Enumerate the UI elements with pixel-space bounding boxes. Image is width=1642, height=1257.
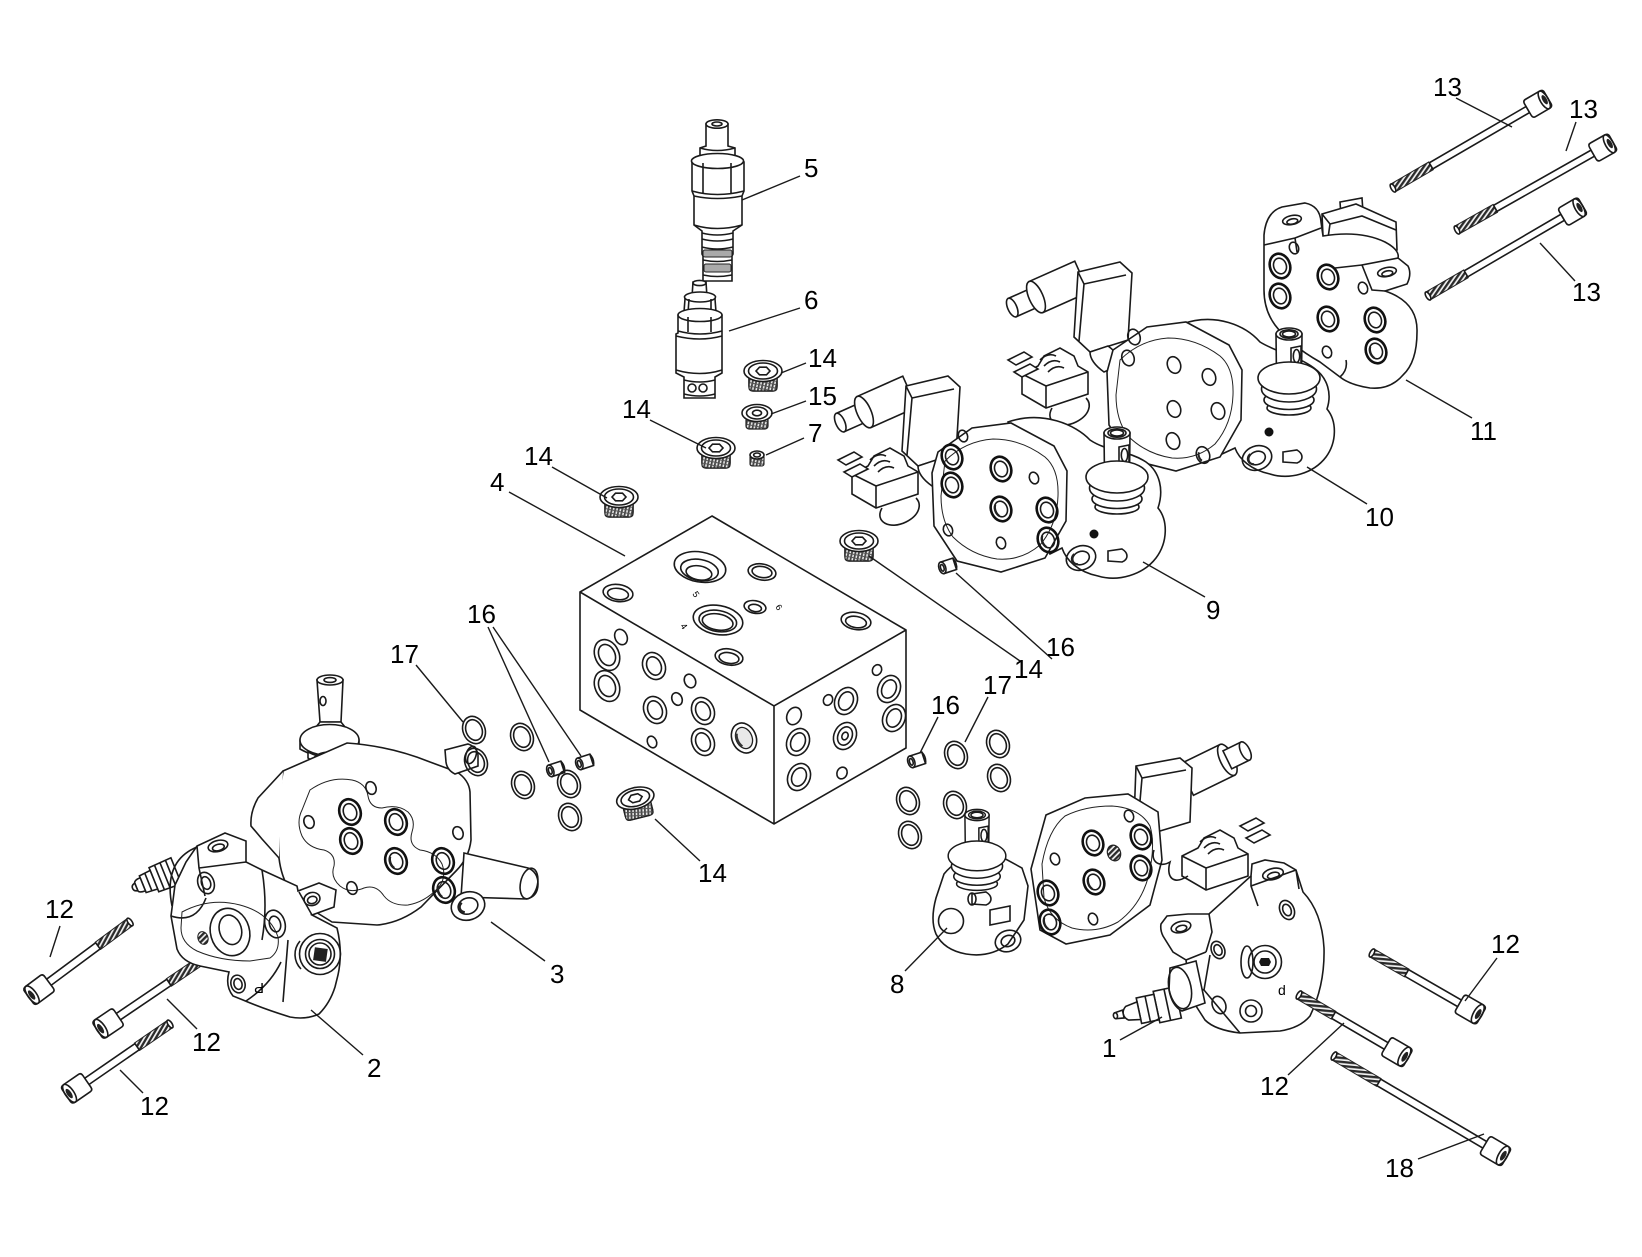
svg-text:14: 14 [808,343,837,373]
svg-text:14: 14 [524,441,553,471]
svg-text:2: 2 [367,1053,381,1083]
svg-text:9: 9 [1206,595,1220,625]
svg-text:15: 15 [808,381,837,411]
svg-text:10: 10 [1365,502,1394,532]
svg-text:13: 13 [1433,72,1462,102]
svg-text:7: 7 [808,418,822,448]
svg-text:14: 14 [622,394,651,424]
svg-text:12: 12 [1260,1071,1289,1101]
svg-text:13: 13 [1569,94,1598,124]
svg-text:13: 13 [1572,277,1601,307]
svg-text:12: 12 [45,894,74,924]
svg-text:5: 5 [804,153,818,183]
svg-text:11: 11 [1470,416,1497,446]
svg-text:17: 17 [983,670,1012,700]
svg-text:18: 18 [1385,1153,1414,1183]
svg-text:12: 12 [140,1091,169,1121]
svg-text:8: 8 [890,969,904,999]
svg-text:P: P [254,979,264,996]
svg-text:4: 4 [490,467,504,497]
svg-text:17: 17 [390,639,419,669]
svg-text:3: 3 [550,959,564,989]
svg-text:d: d [1278,982,1286,998]
svg-text:16: 16 [1046,632,1075,662]
svg-text:6: 6 [804,285,818,315]
svg-text:12: 12 [1491,929,1520,959]
svg-text:14: 14 [1014,654,1043,684]
svg-text:14: 14 [698,858,727,888]
svg-text:16: 16 [931,690,960,720]
svg-text:16: 16 [467,599,496,629]
svg-text:12: 12 [192,1027,221,1057]
svg-text:1: 1 [1102,1033,1116,1063]
